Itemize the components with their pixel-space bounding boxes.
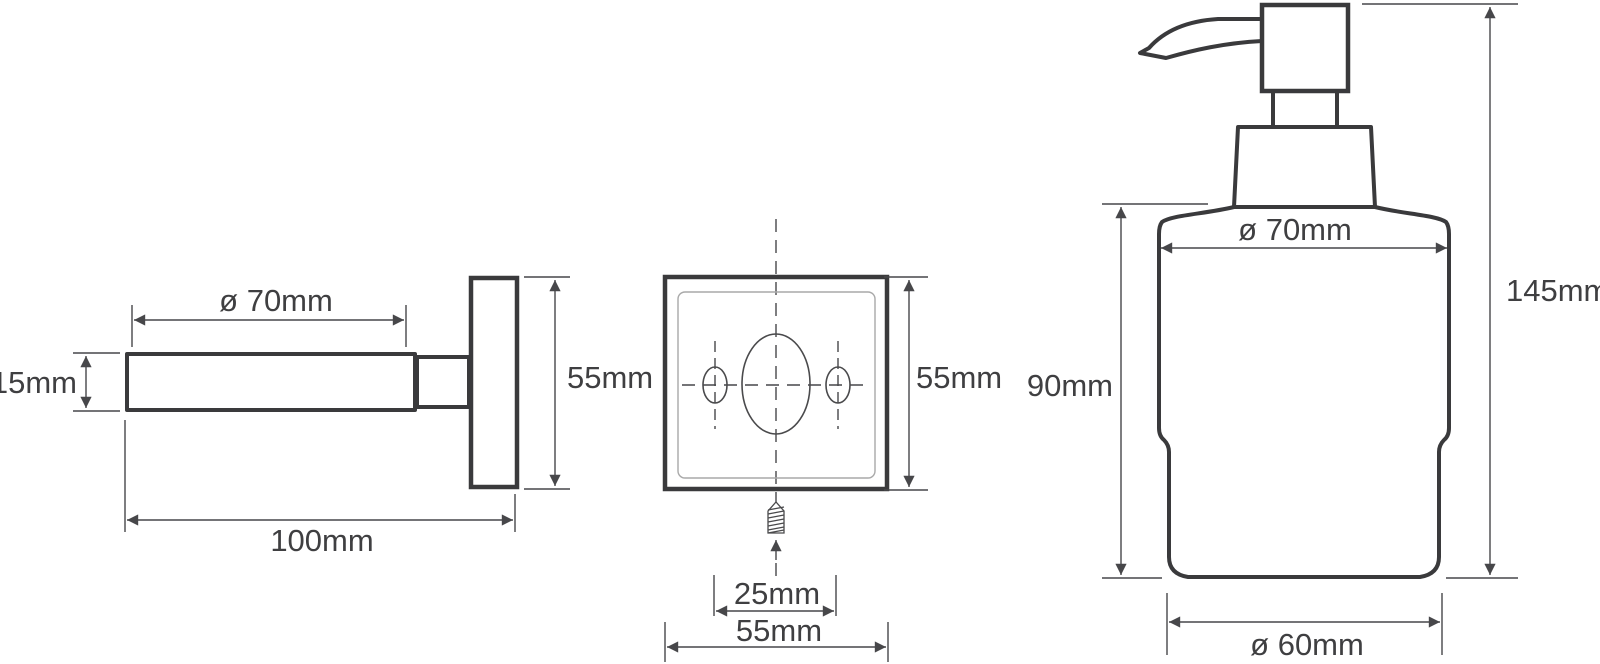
dim-label-total-height: 145mm [1506,273,1600,308]
dim-label-body-height: 90mm [1027,368,1113,403]
technical-drawing-canvas: ø 70mm 15mm 55mm 100mm [0,0,1600,664]
bracket-connector [417,357,469,407]
pump-spout [1140,19,1262,58]
wall-plate-side [471,278,517,487]
bottle-collar [1234,127,1375,207]
bracket-arm [127,354,415,410]
dim-label-arm-thickness: 15mm [0,365,77,400]
dim-label-arm-diameter: ø 70mm [219,283,333,318]
dim-label-plate-width: 55mm [736,613,822,648]
view-plate-front: 55mm 25mm 55mm [665,219,1002,662]
view-bracket-side: ø 70mm 15mm 55mm 100mm [0,277,653,558]
screw-icon [768,502,784,533]
dim-label-screw-offset: 25mm [734,576,820,611]
pump-head [1262,5,1348,91]
dim-label-plate-height: 55mm [567,360,653,395]
dim-label-body-diameter: ø 70mm [1238,212,1352,247]
bottle-body [1159,207,1449,577]
dim-label-base-diameter: ø 60mm [1250,627,1364,662]
view-dispenser-front: ø 70mm 90mm 145mm ø 60mm [1027,4,1600,662]
dim-label-total-depth: 100mm [270,523,373,558]
dim-label-plate-height-front: 55mm [916,360,1002,395]
dimension-drawing: ø 70mm 15mm 55mm 100mm [0,0,1600,664]
pump-neck [1273,91,1337,127]
